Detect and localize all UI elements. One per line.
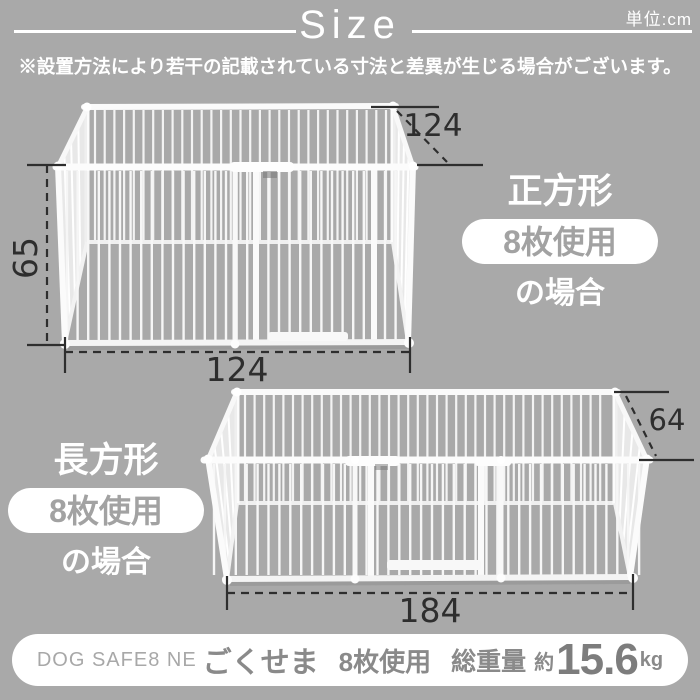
rect-case-label: の場合: [1, 537, 211, 581]
dim-depth-label: 64: [649, 403, 686, 437]
rect-pen-illustration: [204, 388, 652, 586]
disclaimer-note: ※設置方法により若干の記載されている寸法と差異が生じる場合がございます。: [0, 53, 700, 79]
approx-label: 約: [534, 646, 554, 675]
square-panel-badge: 8枚使用: [462, 219, 658, 264]
square-config-label: 正方形 8枚使用 の場合: [455, 174, 665, 312]
dim-height-label: 65: [6, 237, 45, 279]
panel-usage: 8枚使用: [339, 642, 431, 679]
rect-panel-badge: 8枚使用: [8, 488, 204, 533]
dim-depth-label: 124: [403, 108, 462, 144]
size-infographic: Size 単位:cm ※設置方法により若干の記載されている寸法と差異が生じる場合…: [0, 0, 700, 700]
unit-label: 単位:cm: [626, 5, 692, 30]
dim-width-label: 124: [206, 350, 269, 385]
product-code: DOG SAFE8 NE: [37, 649, 197, 672]
weight-value: 15.6: [556, 638, 638, 682]
gate-step: [387, 560, 481, 570]
dim-width-label: 184: [399, 591, 462, 630]
title-rule-right: [412, 30, 692, 33]
square-pen-figure: 65 124 124: [0, 95, 490, 385]
weight-unit: kg: [640, 649, 663, 672]
gate-step: [268, 332, 348, 341]
square-shape-label: 正方形: [455, 174, 665, 211]
square-case-label: の場合: [455, 268, 665, 312]
square-pen-illustration: [54, 102, 418, 350]
rect-config-label: 長方形 8枚使用 の場合: [1, 443, 211, 581]
rect-pen-figure: 64 184: [190, 382, 700, 632]
rect-shape-label: 長方形: [1, 443, 211, 480]
gate-latch: [230, 162, 294, 172]
total-weight-label: 総重量: [451, 642, 526, 678]
product-name: ごくせま: [203, 639, 319, 681]
page-title: Size: [0, 5, 700, 45]
product-summary-bar: DOG SAFE8 NE ごくせま 8枚使用 総重量 約 15.6 kg: [12, 634, 688, 686]
